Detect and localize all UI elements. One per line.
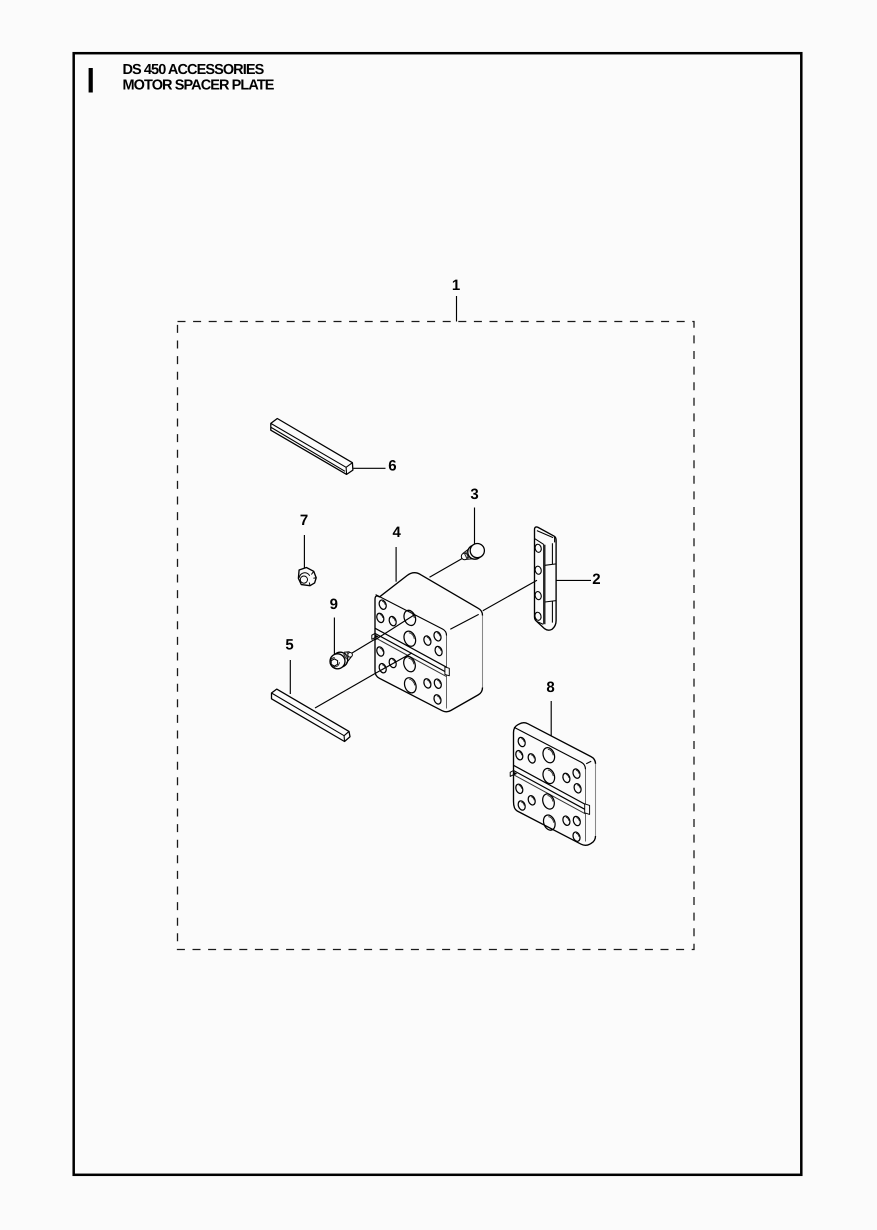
svg-text:8: 8 bbox=[546, 679, 554, 696]
svg-text:DS 450 ACCESSORIES: DS 450 ACCESSORIES bbox=[123, 62, 265, 78]
svg-text:2: 2 bbox=[592, 571, 600, 588]
svg-text:6: 6 bbox=[388, 457, 396, 474]
svg-text:7: 7 bbox=[300, 512, 308, 529]
svg-text:4: 4 bbox=[393, 524, 402, 541]
svg-text:3: 3 bbox=[470, 486, 478, 503]
svg-text:MOTOR SPACER PLATE: MOTOR SPACER PLATE bbox=[123, 77, 275, 93]
svg-text:1: 1 bbox=[452, 277, 460, 294]
svg-text:5: 5 bbox=[285, 636, 293, 653]
svg-text:9: 9 bbox=[330, 596, 338, 613]
